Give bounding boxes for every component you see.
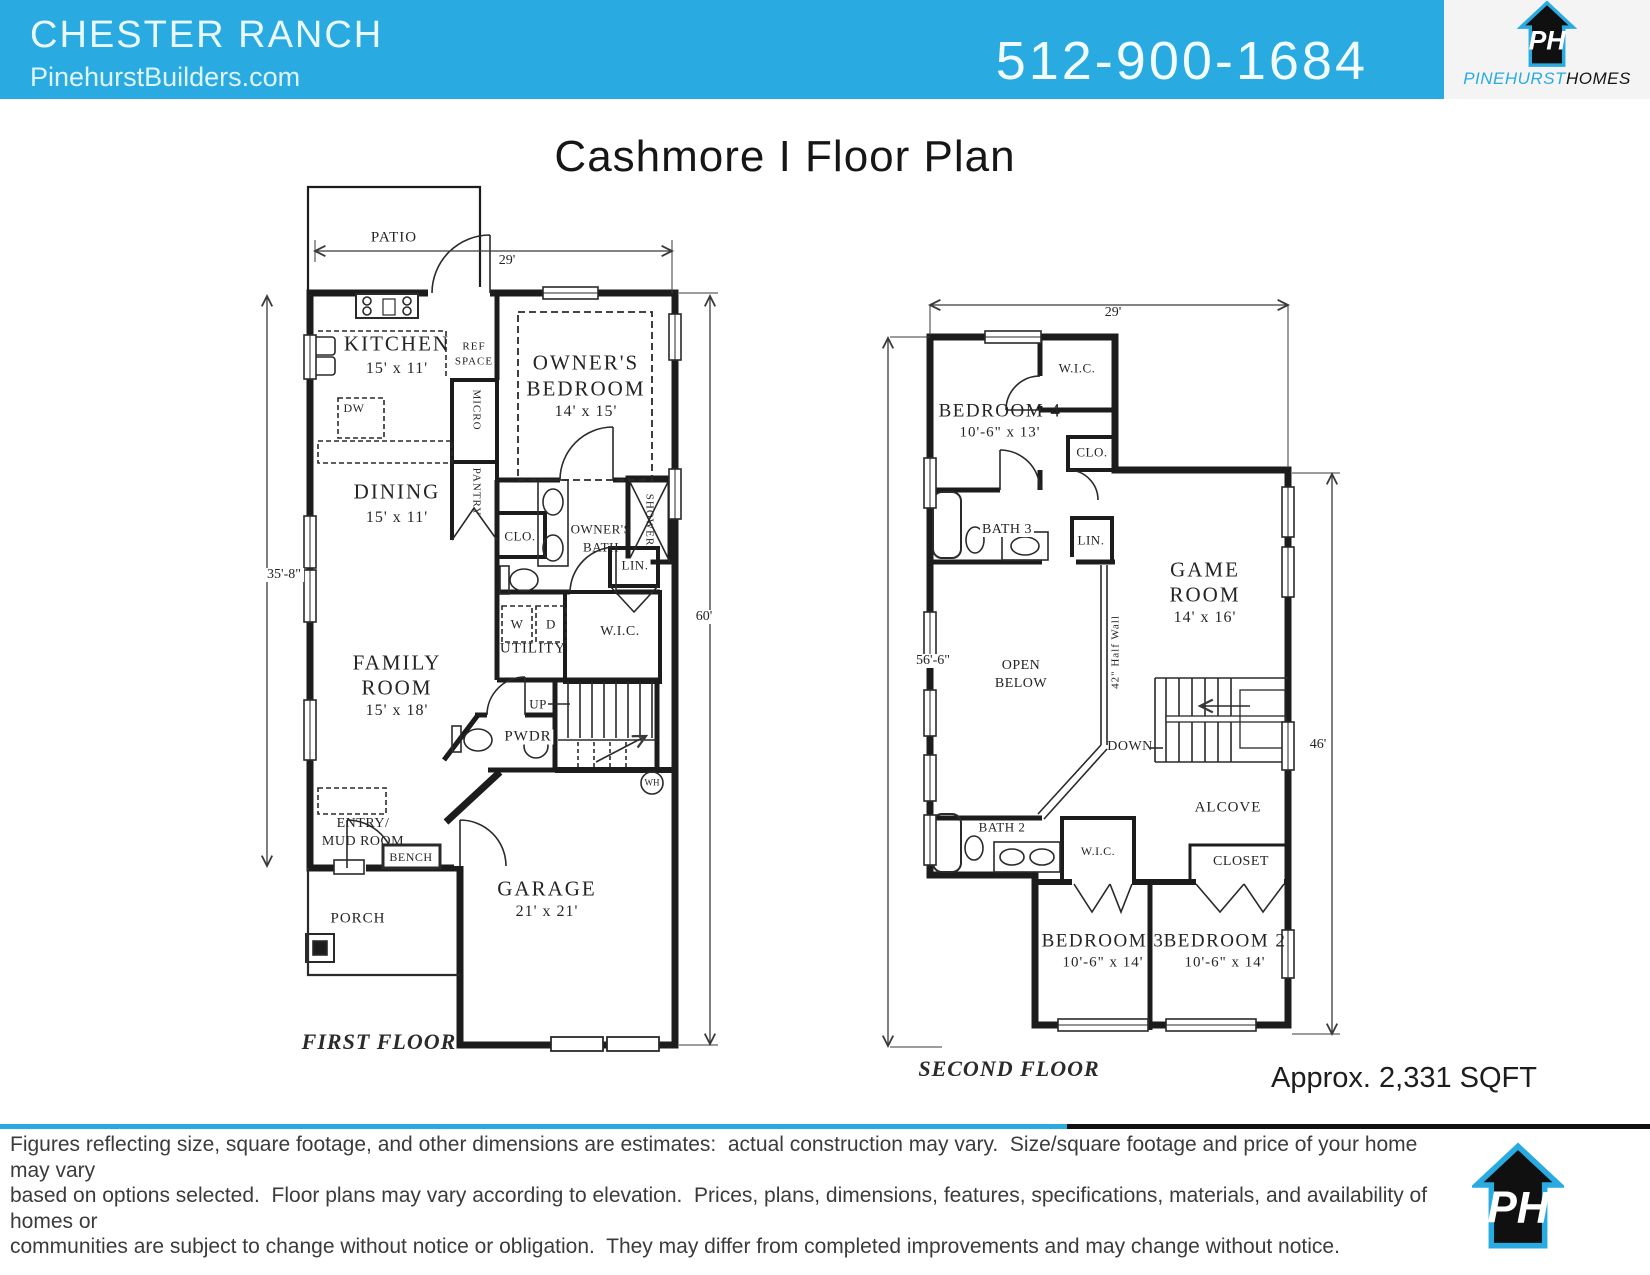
- page-title: Cashmore I Floor Plan: [554, 132, 1015, 182]
- label-open-below: OPEN: [1002, 659, 1041, 673]
- label-family-room: FAMILY: [353, 653, 442, 674]
- disclaimer-line-2: based on options selected. Floor plans m…: [10, 1183, 1460, 1234]
- dim-second-right: 46': [1307, 738, 1330, 752]
- label-kitchen: KITCHEN: [344, 334, 450, 355]
- label-wic-first: W.I.C.: [600, 625, 639, 639]
- label-shower: SHOWER: [644, 494, 655, 546]
- label-bedroom2: BEDROOM 2: [1164, 932, 1287, 951]
- logo-initials: PH: [1529, 26, 1567, 56]
- second-floor-plan-drawing: [860, 280, 1360, 1100]
- label-utility: UTILITY: [500, 642, 566, 657]
- label-dryer: D: [546, 618, 556, 631]
- dim-first-left: 35'-8": [264, 568, 304, 582]
- label-garage-size: 21' x 21': [516, 904, 579, 920]
- label-down: DOWN: [1107, 740, 1153, 754]
- label-bedroom4: BEDROOM 4: [939, 402, 1062, 421]
- label-open-below-2: BELOW: [995, 677, 1047, 691]
- label-lin-second: LIN.: [1076, 534, 1107, 547]
- label-dining-size: 15' x 11': [366, 510, 428, 526]
- label-family-room-2: ROOM: [361, 678, 432, 699]
- label-clo: CLO.: [504, 530, 535, 543]
- label-entry: ENTRY/: [337, 817, 390, 831]
- label-pantry: PANTRY: [471, 468, 482, 516]
- label-pwdr: PWDR: [502, 730, 553, 745]
- label-owners-bath-2: BATH: [583, 541, 619, 554]
- disclaimer-line-1: Figures reflecting size, square footage,…: [10, 1132, 1460, 1183]
- pinehurst-house-logo-icon-footer: PH: [1472, 1140, 1564, 1252]
- disclaimer-line-3: communities are subject to change withou…: [10, 1234, 1460, 1260]
- label-micro: MICRO: [471, 389, 482, 430]
- pinehurst-house-logo-icon: PH: [1515, 0, 1579, 68]
- label-bath2: BATH 2: [977, 821, 1028, 834]
- community-name: CHESTER RANCH: [30, 14, 383, 57]
- label-water-heater: WH: [645, 779, 660, 788]
- second-floor-caption: SECOND FLOOR: [918, 1058, 1099, 1080]
- label-owners-bedroom: OWNER'S: [533, 353, 639, 374]
- label-dw: DW: [344, 402, 365, 414]
- first-floor-caption: FIRST FLOOR: [302, 1031, 457, 1053]
- label-up: UP: [529, 698, 547, 711]
- label-game-room: GAME: [1170, 560, 1240, 581]
- label-porch: PORCH: [330, 912, 385, 927]
- label-bath3: BATH 3: [980, 523, 1034, 537]
- label-entry-2: MUD ROOM: [322, 835, 404, 849]
- first-floor-plan-drawing: [250, 180, 730, 1060]
- label-dining: DINING: [354, 482, 441, 503]
- footer-logo: PH: [1472, 1140, 1564, 1257]
- label-garage: GARAGE: [497, 879, 597, 900]
- label-washer: W: [511, 618, 524, 631]
- disclaimer: Figures reflecting size, square footage,…: [10, 1132, 1460, 1260]
- footer-logo-initials: PH: [1487, 1184, 1549, 1233]
- phone-number: 512-900-1684: [996, 30, 1368, 92]
- label-bedroom3: BEDROOM 3: [1042, 932, 1165, 951]
- builder-website: PinehurstBuilders.com: [30, 62, 300, 93]
- approx-sqft: Approx. 2,331 SQFT: [1271, 1062, 1537, 1095]
- brand-wordmark: PINEHURSTHOMES: [1463, 69, 1631, 89]
- flyer-page: CHESTER RANCH PinehurstBuilders.com 512-…: [0, 0, 1650, 1275]
- label-bedroom2-size: 10'-6" x 14': [1184, 956, 1265, 971]
- header-bar: CHESTER RANCH PinehurstBuilders.com 512-…: [0, 0, 1650, 99]
- brand-secondary: HOMES: [1566, 69, 1631, 88]
- label-lin: LIN.: [620, 559, 651, 572]
- dim-second-width: 29': [1102, 306, 1125, 320]
- label-ref-space-2: SPACE: [455, 357, 493, 368]
- label-bedroom4-size: 10'-6" x 13': [959, 426, 1040, 441]
- label-owners-bath: OWNER'S: [571, 523, 632, 536]
- label-owners-bedroom-size: 14' x 15': [555, 404, 618, 420]
- dim-first-width: 29': [496, 254, 519, 268]
- label-family-room-size: 15' x 18': [366, 703, 429, 719]
- dim-first-right: 60': [693, 610, 716, 624]
- footer-rule-dark: [1067, 1124, 1650, 1129]
- brand-primary: PINEHURST: [1463, 69, 1566, 88]
- label-ref-space: REF: [462, 342, 485, 353]
- label-game-room-2: ROOM: [1169, 585, 1240, 606]
- label-wic-top: W.I.C.: [1059, 362, 1096, 375]
- label-half-wall: 42" Half Wall: [1111, 615, 1122, 689]
- label-closet: CLOSET: [1213, 855, 1269, 869]
- label-kitchen-size: 15' x 11': [366, 361, 428, 377]
- label-wic2: W.I.C.: [1081, 845, 1115, 857]
- label-clo-second: CLO.: [1076, 446, 1107, 459]
- builder-logo-box: PH PINEHURSTHOMES: [1444, 0, 1650, 99]
- label-bedroom3-size: 10'-6" x 14': [1062, 956, 1143, 971]
- dim-second-left: 56'-6": [913, 654, 953, 668]
- label-game-room-size: 14' x 16': [1174, 610, 1237, 626]
- label-patio: PATIO: [371, 231, 417, 246]
- footer-rule-accent: [0, 1124, 1067, 1129]
- label-owners-bedroom-2: BEDROOM: [526, 379, 645, 400]
- label-bench: BENCH: [389, 851, 432, 863]
- label-alcove: ALCOVE: [1195, 801, 1262, 816]
